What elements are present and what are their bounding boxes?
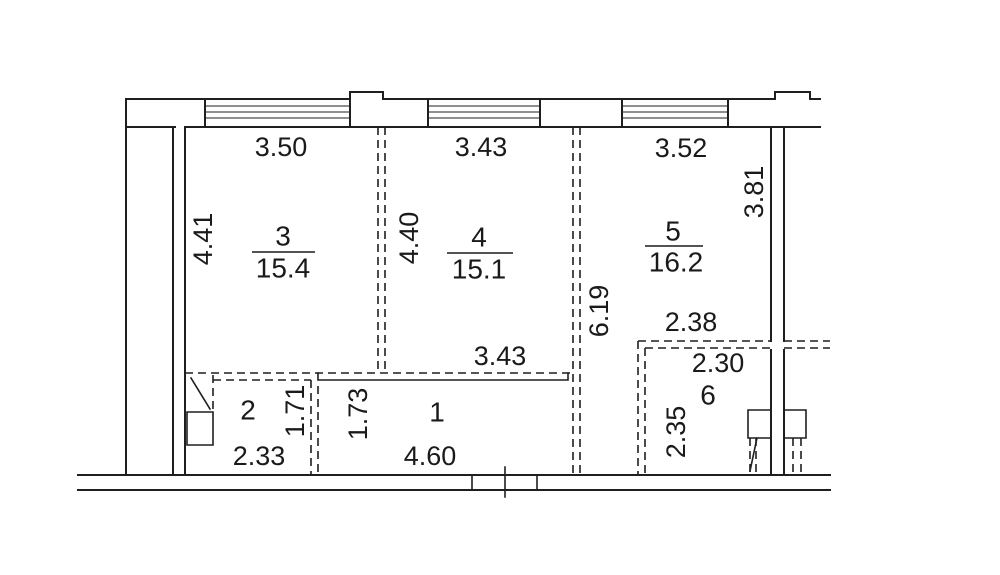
room4-area: 15.1 xyxy=(452,254,507,285)
dim-corridor-height: 6.19 xyxy=(584,285,614,338)
entry-door xyxy=(472,467,537,497)
room1-number: 1 xyxy=(429,397,445,428)
dim-room2-width: 2.33 xyxy=(233,441,286,471)
window-room5 xyxy=(622,106,728,118)
room3-area: 15.4 xyxy=(256,253,311,284)
cabinet-room2 xyxy=(187,412,213,445)
dim-room6-width-above: 2.38 xyxy=(665,307,718,337)
dim-room1-height: 1.73 xyxy=(343,388,373,441)
dim-room1-width: 4.60 xyxy=(404,441,457,471)
dim-room3-width: 3.50 xyxy=(255,132,308,162)
window-piers xyxy=(205,99,728,127)
floor-plan: 3.50 3.43 3.52 4.41 4.40 3.81 6.19 1.71 … xyxy=(0,0,1000,575)
room5-number: 5 xyxy=(665,216,681,247)
window-room3 xyxy=(205,106,350,118)
interior-walls-solid xyxy=(318,373,568,380)
dim-room4-height: 4.40 xyxy=(394,212,424,265)
vent-shaft-left xyxy=(748,410,771,471)
dim-room6-height: 2.35 xyxy=(661,406,691,459)
window-room4 xyxy=(428,106,540,118)
vent-shaft-right xyxy=(784,410,806,438)
room5-area: 16.2 xyxy=(649,247,704,278)
dim-room4-width-bottom: 3.43 xyxy=(474,341,527,371)
room2-number: 2 xyxy=(240,395,256,426)
room4-number: 4 xyxy=(471,222,487,253)
dim-room5-width: 3.52 xyxy=(655,133,708,163)
dim-room6-width: 2.30 xyxy=(692,348,745,378)
dim-room3-height: 4.41 xyxy=(188,213,218,266)
room6-number: 6 xyxy=(700,380,716,411)
door-swing-room2 xyxy=(191,378,210,409)
room3-number: 3 xyxy=(275,221,291,252)
dim-room4-width: 3.43 xyxy=(455,132,508,162)
floor-plan-drawing: 3.50 3.43 3.52 4.41 4.40 3.81 6.19 1.71 … xyxy=(0,0,1000,575)
dim-room5-height: 3.81 xyxy=(739,166,769,219)
dim-room2-height: 1.71 xyxy=(280,385,310,438)
